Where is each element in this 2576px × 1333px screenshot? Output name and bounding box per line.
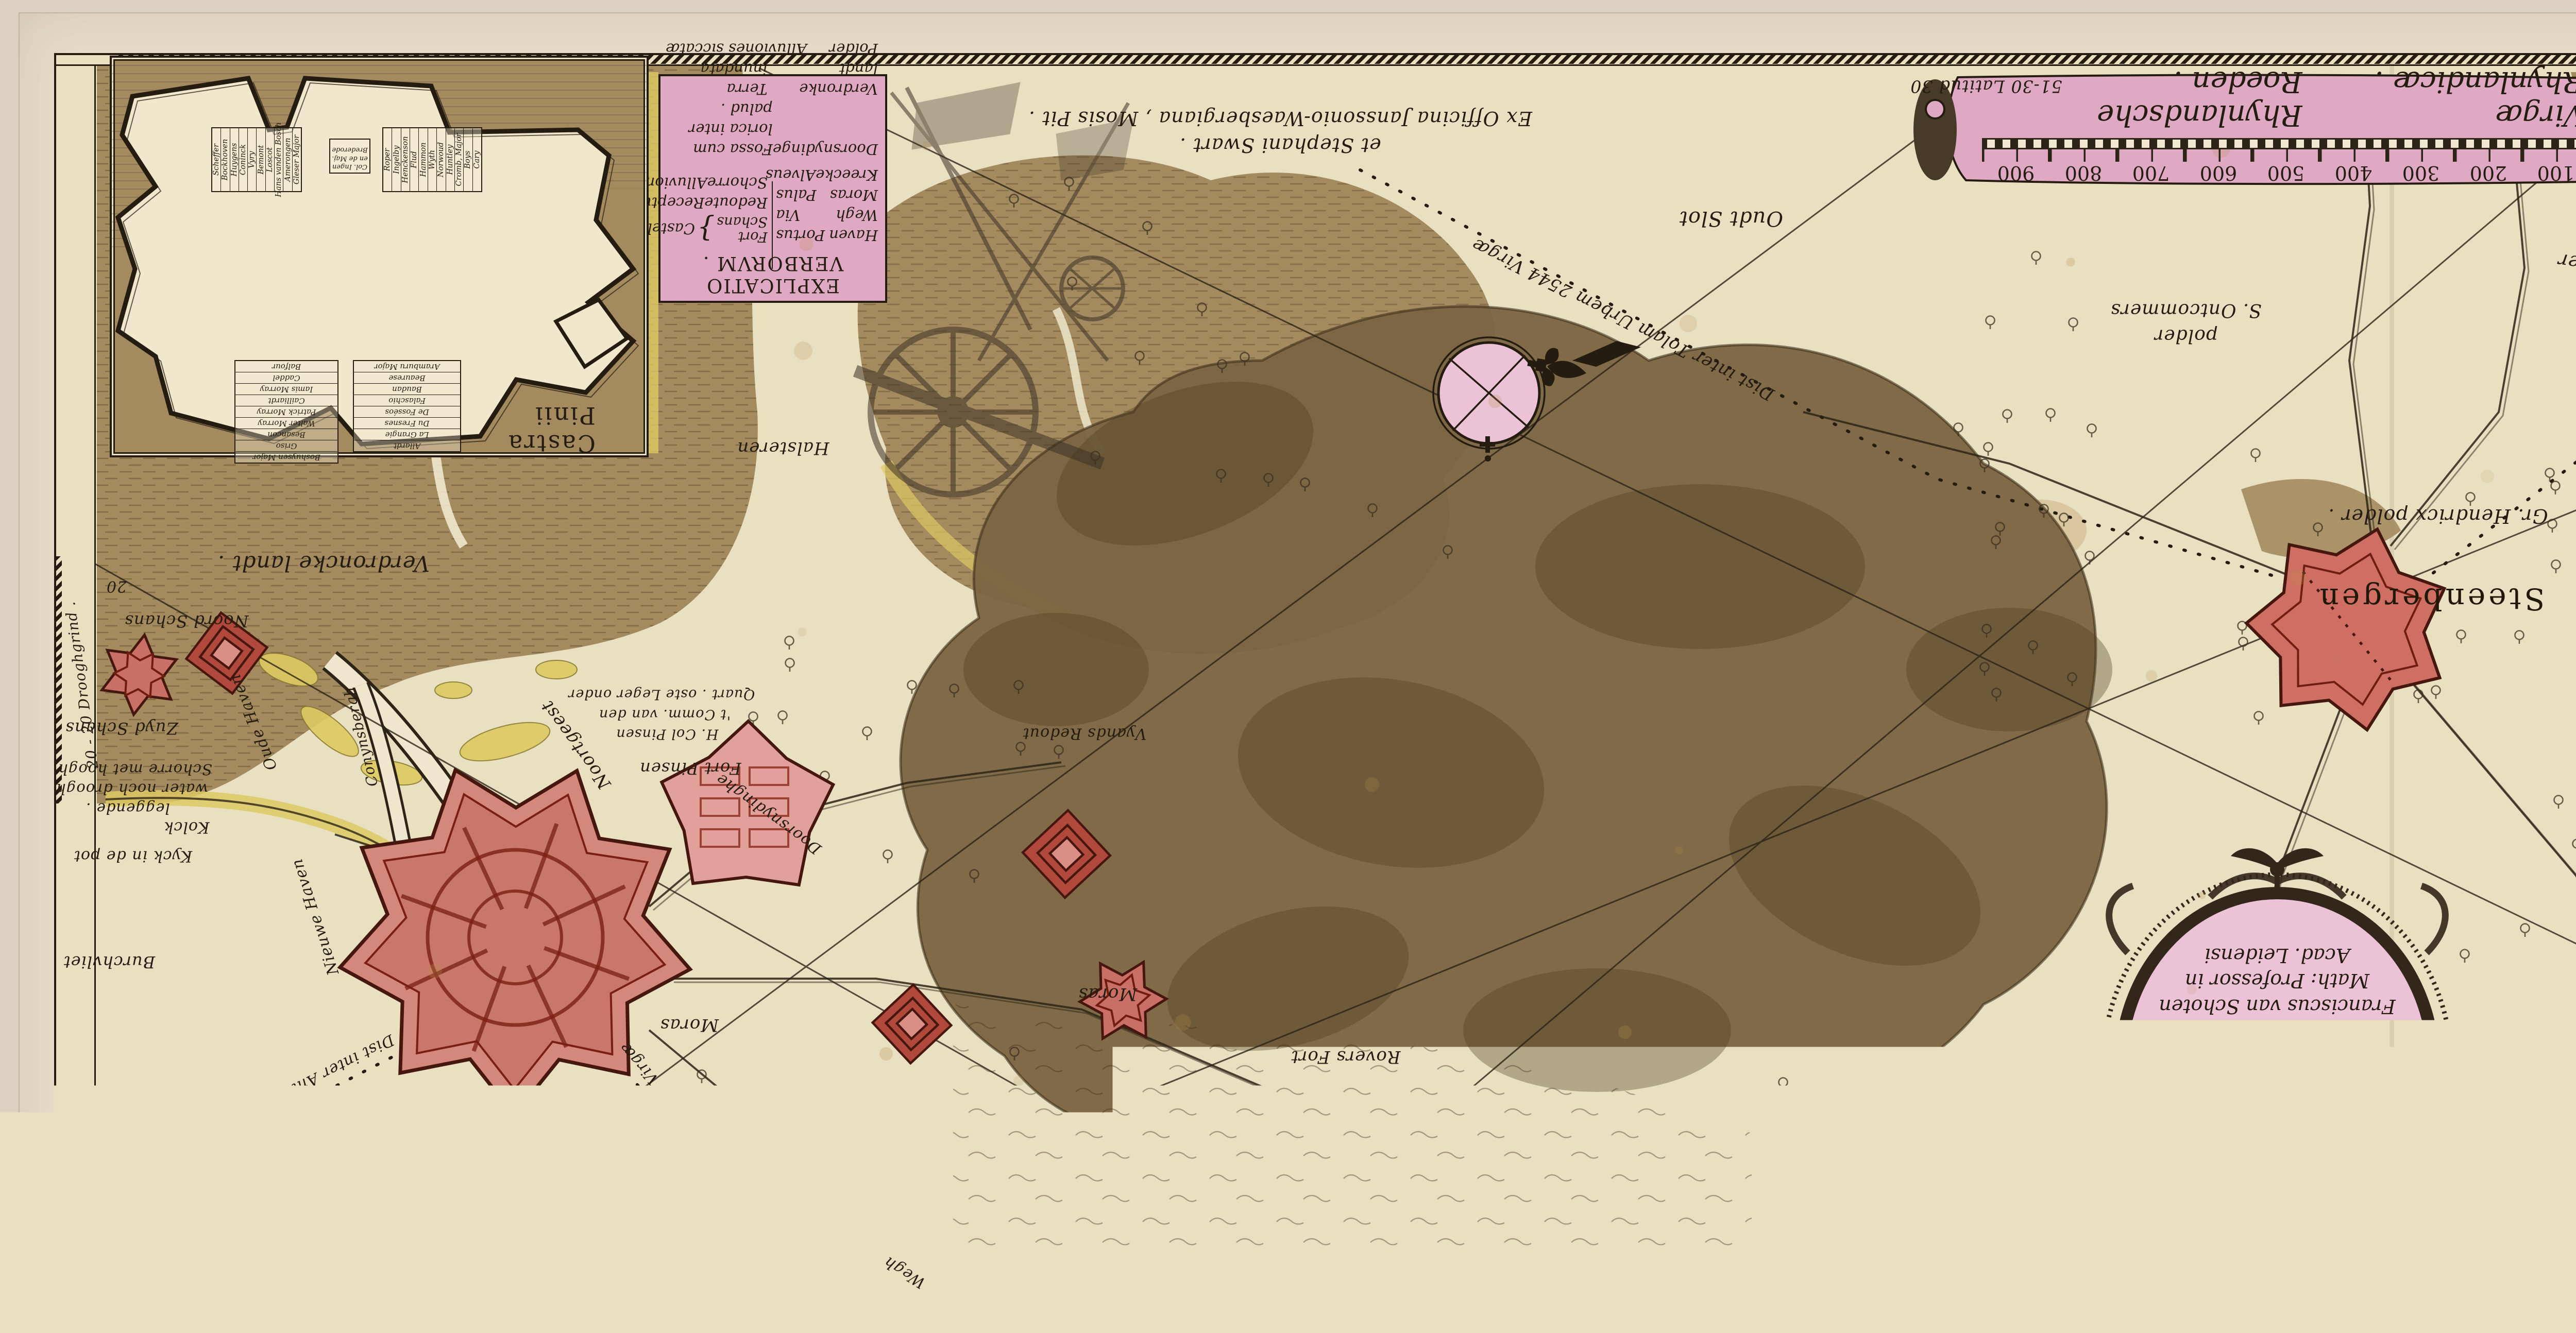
inset-name: Norwoud bbox=[437, 142, 445, 177]
inset-names-right-block: RoperIngelbyHenckensonFludHammonWythNorw… bbox=[382, 127, 482, 192]
place-label: Schorre met hoogh bbox=[58, 761, 212, 778]
inset-name: Cary bbox=[473, 151, 481, 169]
scale-number: 600 bbox=[2200, 162, 2238, 184]
inset-name: Henckenson bbox=[401, 136, 410, 183]
cartouche-title-line: Stenbergæ bbox=[2133, 1134, 2421, 1163]
legend-row: HavenPortus bbox=[776, 225, 878, 245]
inset-name: Gleser Major bbox=[293, 135, 301, 184]
legend-column-forts: FortSchans}CastellumRedouteReceptusSchor… bbox=[666, 164, 768, 245]
place-label: Halsteren bbox=[737, 438, 829, 458]
imprint-line: et Stephani Swart . bbox=[1179, 134, 1381, 157]
inset-name: De Fosséos bbox=[354, 406, 460, 417]
inset-name: Cromb, Major bbox=[455, 133, 463, 186]
legend-row: KreeckeAlveus bbox=[776, 164, 878, 184]
scale-number: 100 bbox=[2537, 162, 2575, 184]
legend-title: EXPLICATIO VERBORVM . bbox=[660, 252, 885, 302]
scale-number: 400 bbox=[2335, 162, 2372, 184]
place-label: Moras bbox=[660, 1015, 719, 1035]
scale-checker-bar bbox=[1982, 138, 2576, 149]
inset-name: Besancon bbox=[235, 429, 337, 440]
inset-name: Huntley bbox=[446, 145, 454, 175]
place-label: polder bbox=[2154, 326, 2218, 347]
legend-row: WeghVia bbox=[776, 205, 878, 225]
place-label: 't Comm. van den bbox=[599, 707, 731, 723]
cartouche-credit-lines: Ad amussim fecitFranciscus van SchotenMa… bbox=[2133, 942, 2421, 1044]
place-label: Rovers Fort bbox=[1291, 1047, 1400, 1067]
inset-name: Bockhoven bbox=[221, 139, 229, 180]
scale-number: 300 bbox=[2402, 162, 2440, 184]
inset-name: Caddel bbox=[235, 372, 337, 383]
scale-number: 200 bbox=[2470, 162, 2507, 184]
inset-rows-right-block: Aramburu MajorBeaureseBaudanFalaschioDe … bbox=[353, 360, 461, 452]
cartouche-title-line: Bergarum ad Zomam bbox=[2133, 1163, 2421, 1191]
cartouche-title-lines: TABVLABergarum ad ZomamStenbergæet novor… bbox=[2133, 1106, 2421, 1228]
inset-name: Scheffer bbox=[212, 144, 221, 176]
inset-name: Falaschio bbox=[354, 395, 460, 406]
imprint-line: Ex Officina Janssonio-Waesbergiana , Mos… bbox=[1028, 107, 1532, 130]
cartouche-credit-line: Acad. Leidensi bbox=[2133, 942, 2421, 967]
inset-name: Allardt bbox=[354, 440, 460, 451]
inset-name: Cailliardt bbox=[235, 395, 337, 406]
place-label: Moras bbox=[1078, 984, 1137, 1004]
inset-center-note: Col. Ingenen de Maj.Brederode bbox=[329, 139, 370, 174]
inset-name: Hans vanden Bosch bbox=[275, 123, 283, 197]
inset-name: Bemont bbox=[257, 145, 265, 175]
border-note: 30 bbox=[2459, 1268, 2482, 1289]
inset-name: Amerongen bbox=[284, 138, 292, 181]
scale-number: 900 bbox=[1997, 162, 2035, 184]
inset-name: Griso bbox=[235, 440, 337, 451]
scale-tick-labels: 100200300400500600700800900 bbox=[1982, 162, 2576, 184]
legend-explicatio: EXPLICATIO VERBORVM . HavenPortusWeghVia… bbox=[660, 76, 885, 302]
scale-number: 700 bbox=[2132, 162, 2170, 184]
legend-wide-rows: DoorsnydingeFossa cum lorica inter palud… bbox=[660, 39, 885, 165]
cartouche-title-line: TABVLA bbox=[2133, 1191, 2421, 1228]
title-cartouche: TABVLABergarum ad ZomamStenbergæet novor… bbox=[2133, 899, 2421, 1228]
legend-brace-row: FortSchans}Castellum bbox=[666, 213, 768, 245]
cartouche-title-line: et novorum ibi operum bbox=[2133, 1106, 2421, 1134]
legend-divider bbox=[772, 181, 773, 269]
legend-wide-row: PolderAlluviones siccatæ bbox=[666, 39, 878, 59]
scale-number: 500 bbox=[2267, 162, 2305, 184]
inset-name: Roper bbox=[383, 148, 392, 171]
place-label: Fort Moermont bbox=[890, 1082, 1032, 1102]
inset-name: Patrick Morray bbox=[235, 406, 337, 417]
scale-ticks bbox=[1982, 149, 2576, 162]
inset-name: Du Fresnes bbox=[354, 418, 460, 429]
place-label: S. Ontcommers bbox=[2110, 300, 2262, 321]
legend-wide-row: DoorsnydingeFossa cum lorica inter palud… bbox=[666, 99, 878, 159]
cartouche-credit-line: Ad amussim fecit bbox=[2133, 1019, 2421, 1044]
inset-name: Baudan bbox=[354, 384, 460, 395]
place-label: water noch droogh bbox=[56, 780, 208, 798]
inset-name: Coninck bbox=[239, 144, 247, 175]
legend-wide-row: Verdronke landtTerra inundata bbox=[666, 59, 878, 99]
inset-name: Aramburu Major bbox=[354, 361, 460, 372]
inset-name: Iamis Morray bbox=[235, 384, 337, 395]
place-label: Noord Schans bbox=[124, 611, 248, 631]
inset-name: Boys bbox=[464, 150, 472, 168]
scale-title-dutch: Rhynlandsche Roeden . bbox=[1988, 65, 2302, 132]
legend-row: MorasPalus bbox=[776, 185, 878, 205]
inset-name: Boshuysen Major bbox=[235, 452, 337, 463]
inset-rows-left-block: BalfourCaddelIamis MorrayCailliardtPatri… bbox=[234, 360, 338, 464]
inset-name: Walter Morray bbox=[235, 418, 337, 429]
legend-column-dutch-latin: HavenPortusWeghViaMorasPalusKreeckeAlveu… bbox=[776, 164, 878, 245]
place-label: Kolck bbox=[163, 818, 209, 836]
inset-name: Vyry bbox=[248, 151, 256, 168]
place-label: Vyands Redout bbox=[1023, 725, 1147, 743]
inset-name: Wyth bbox=[428, 150, 436, 169]
inset-name: Flud bbox=[410, 151, 418, 168]
inset-name: Huygens bbox=[230, 143, 239, 177]
cartouche-credit-line: Math: Professor in bbox=[2133, 968, 2421, 993]
legend-row: RedouteReceptus bbox=[666, 193, 768, 213]
inset-name: Loscot bbox=[266, 147, 274, 172]
inset-names-left-block: SchefferBockhovenHuygensConinckVyryBemon… bbox=[211, 127, 302, 192]
border-note: 51-30 Latitud 30 bbox=[1910, 77, 2062, 97]
place-label: Bergen op Zoom bbox=[313, 1129, 702, 1177]
inset-castra-pinii: SchefferBockhovenHuygensConinckVyryBemon… bbox=[110, 56, 649, 457]
inset-name: Hammon bbox=[419, 143, 428, 177]
inset-caption: Castra Pinii bbox=[494, 402, 596, 457]
border-note: 51-25 Latitud. 25 bbox=[435, 1222, 606, 1243]
place-label: H. Col Pinsen bbox=[616, 726, 718, 742]
place-label: Oudt Slot bbox=[1679, 207, 1783, 230]
place-label: leggende . bbox=[86, 800, 170, 817]
border-note: 20 bbox=[106, 577, 127, 595]
inset-name: Ingelby bbox=[393, 145, 401, 174]
legend-row: SchorreAlluviones bbox=[666, 173, 768, 193]
scale-title-latin: Virgæ Rhynlandicæ . bbox=[2302, 65, 2576, 132]
inset-name: Beaurese bbox=[354, 372, 460, 383]
place-label: Steenbergen bbox=[2316, 582, 2545, 617]
scale-number: 800 bbox=[2065, 162, 2103, 184]
inset-name: La Grangie bbox=[354, 429, 460, 440]
cartouche-credit-line: Franciscus van Schoten bbox=[2133, 993, 2421, 1018]
place-label: Kyck in de pot bbox=[74, 847, 192, 865]
map-sheet: 100200300400500600700800900 Virgæ Rhynla… bbox=[0, 0, 2576, 1333]
place-label: Gr. Hendricx polder . bbox=[2328, 505, 2548, 527]
place-label: Quart . oste Leger onder bbox=[568, 687, 755, 703]
place-label: Verdroncke landt . bbox=[217, 551, 430, 576]
place-label: Burchvliet bbox=[63, 952, 155, 972]
sheet-number: XXVI bbox=[98, 1201, 181, 1233]
inset-name: Balfour bbox=[235, 361, 337, 372]
